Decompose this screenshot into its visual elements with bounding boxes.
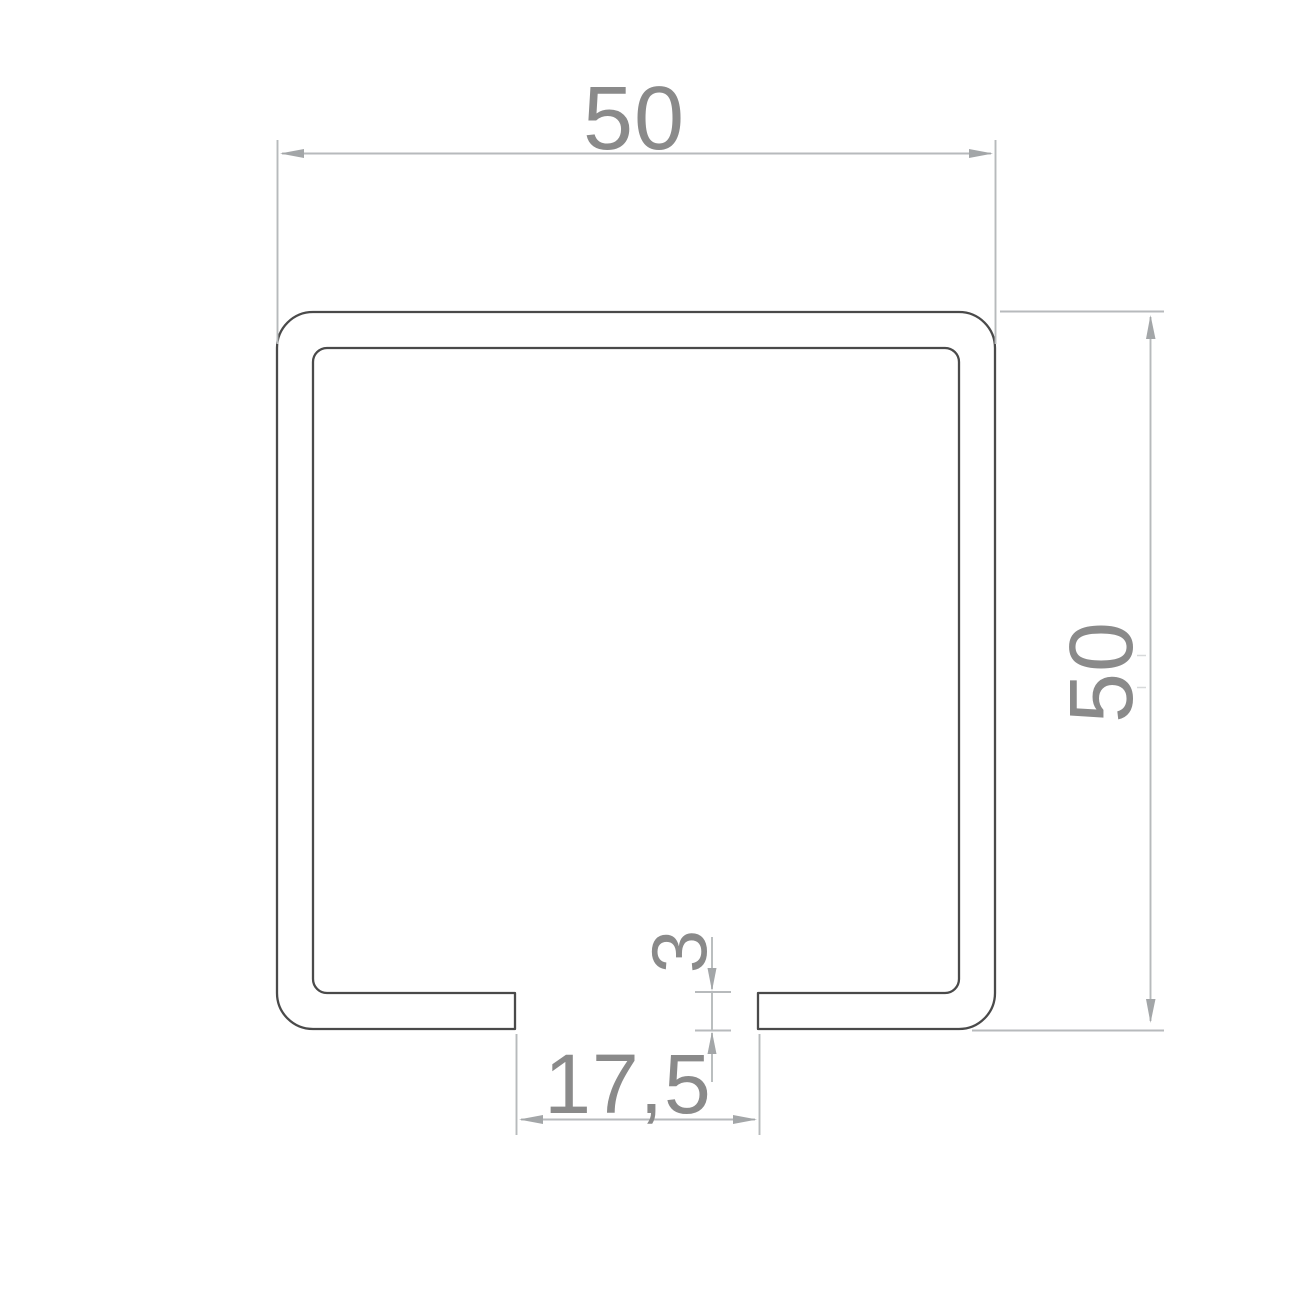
dimension-label-width-group: 50 bbox=[583, 69, 685, 169]
arrow-left-icon bbox=[519, 1115, 543, 1124]
dimension-width-top: 50 bbox=[278, 69, 996, 344]
dimension-height-right: 50 bbox=[972, 312, 1164, 1031]
c-profile-outline bbox=[277, 312, 995, 1029]
dimension-label-slot-width: 17,5 bbox=[544, 1037, 712, 1131]
dimension-label-height: 50 bbox=[1052, 621, 1152, 723]
dimension-label-height-group: 50 bbox=[1052, 621, 1152, 723]
dimension-label-thickness-group: 3 bbox=[635, 929, 723, 973]
technical-drawing-canvas: 50 50 bbox=[0, 0, 1312, 1312]
dimension-label-thickness: 3 bbox=[635, 929, 723, 973]
dimension-label-width: 50 bbox=[583, 69, 685, 169]
c-profile-technical-drawing: 50 50 bbox=[0, 0, 1312, 1312]
dimension-slot-width: 17,5 bbox=[517, 1034, 760, 1135]
arrow-left-icon bbox=[280, 149, 304, 158]
arrow-down-icon bbox=[1146, 999, 1156, 1023]
arrow-up-icon bbox=[1146, 315, 1156, 339]
dimension-label-slot-group: 17,5 bbox=[544, 1037, 712, 1131]
arrow-right-icon bbox=[969, 149, 993, 158]
arrow-right-icon bbox=[733, 1115, 757, 1124]
